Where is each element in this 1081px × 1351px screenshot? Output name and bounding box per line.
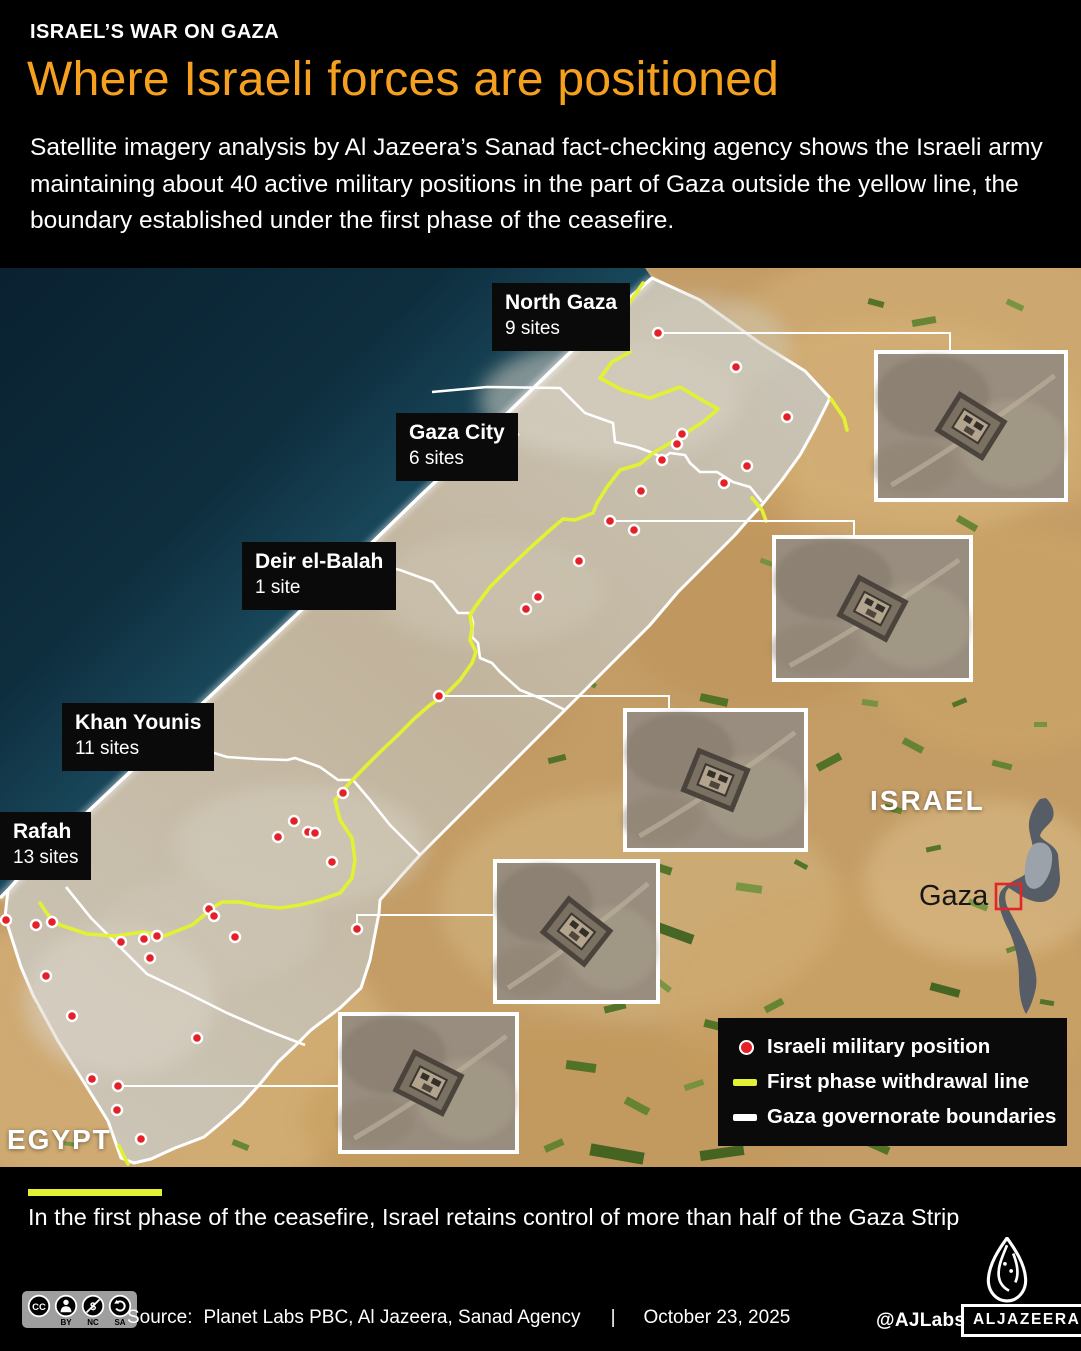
military-position-dot (31, 920, 41, 930)
label-khan-younis: Khan Younis 11 sites (62, 703, 214, 771)
boundary-line-swatch (733, 1114, 757, 1121)
footnote: In the first phase of the ceasefire, Isr… (28, 1204, 1038, 1231)
governorate-sites: 13 sites (13, 847, 78, 869)
egypt-label: EGYPT (7, 1124, 112, 1156)
military-position-dot (719, 478, 729, 488)
label-deir-el-balah: Deir el-Balah 1 site (242, 542, 396, 610)
footnote-accent-bar (28, 1189, 162, 1196)
cc-icon: CC (27, 1294, 51, 1327)
label-rafah: Rafah 13 sites (0, 812, 91, 880)
creative-commons-badge: CC BY $ NC SA (22, 1291, 137, 1328)
military-position-dot (67, 1011, 77, 1021)
svg-text:CC: CC (32, 1302, 46, 1313)
military-position-dot (112, 1105, 122, 1115)
date: October 23, 2025 (644, 1307, 791, 1329)
infographic-canvas: ISRAEL’S WAR ON GAZA Where Israeli force… (0, 0, 1081, 1351)
governorate-name: Deir el-Balah (255, 550, 383, 574)
description: Satellite imagery analysis by Al Jazeera… (30, 130, 1068, 240)
governorate-name: Rafah (13, 820, 78, 844)
satellite-inset-photo (770, 537, 971, 680)
source-line: Source: Planet Labs PBC, Al Jazeera, San… (127, 1307, 790, 1329)
military-position-dot (657, 455, 667, 465)
al-jazeera-flame-logo-icon (984, 1237, 1030, 1308)
legend-row-positions: Israeli military position (718, 1035, 1067, 1059)
governorate-sites: 6 sites (409, 448, 505, 470)
military-position-dot (145, 953, 155, 963)
gaza-inset-label: Gaza (919, 880, 988, 913)
military-position-dot (782, 412, 792, 422)
military-position-dot (310, 828, 320, 838)
military-position-dot (629, 525, 639, 535)
cc-by-icon: BY (54, 1294, 78, 1327)
military-position-dot (116, 937, 126, 947)
military-position-dot (41, 971, 51, 981)
governorate-name: Khan Younis (75, 711, 201, 735)
satellite-inset-photo (872, 352, 1066, 500)
satellite-inset-photo (492, 861, 658, 1002)
military-position-dot (113, 1081, 123, 1091)
military-position-dot (136, 1134, 146, 1144)
legend-label: First phase withdrawal line (767, 1070, 1029, 1094)
military-position-dot (327, 857, 337, 867)
source-value: Planet Labs PBC, Al Jazeera, Sanad Agenc… (203, 1307, 580, 1329)
military-position-dot (139, 934, 149, 944)
legend-row-withdrawal-line: First phase withdrawal line (718, 1070, 1067, 1094)
military-position-dot (605, 516, 615, 526)
military-position-dot (1, 915, 11, 925)
military-position-dot (289, 816, 299, 826)
al-jazeera-wordmark: ALJAZEERA (961, 1304, 1081, 1337)
label-north-gaza: North Gaza 9 sites (492, 283, 630, 351)
legend: Israeli military position First phase wi… (718, 1018, 1067, 1146)
governorate-sites: 1 site (255, 577, 383, 599)
gaza-map: North Gaza 9 sites Gaza City 6 sites Dei… (0, 268, 1081, 1167)
kicker: ISRAEL’S WAR ON GAZA (30, 21, 279, 44)
military-position-swatch (739, 1040, 754, 1055)
israel-label: ISRAEL (870, 785, 985, 817)
cc-nc-icon: $ NC (81, 1294, 105, 1327)
governorate-sites: 11 sites (75, 738, 201, 760)
military-position-dot (352, 924, 362, 934)
separator: | (611, 1307, 616, 1329)
legend-row-boundaries: Gaza governorate boundaries (718, 1105, 1067, 1129)
military-position-dot (672, 439, 682, 449)
page-title: Where Israeli forces are positioned (27, 52, 779, 107)
military-position-dot (192, 1033, 202, 1043)
satellite-inset-photo (336, 1014, 517, 1152)
military-position-dot (742, 461, 752, 471)
military-position-dot (653, 328, 663, 338)
military-position-dot (731, 362, 741, 372)
governorate-sites: 9 sites (505, 318, 617, 340)
satellite-inset-photo (621, 710, 806, 850)
military-position-dot (636, 486, 646, 496)
military-position-dot (434, 691, 444, 701)
ajlabs-handle: @AJLabs (876, 1310, 965, 1332)
military-position-dot (677, 429, 687, 439)
legend-label: Gaza governorate boundaries (767, 1105, 1056, 1129)
military-position-dot (273, 832, 283, 842)
governorate-name: North Gaza (505, 291, 617, 315)
governorate-name: Gaza City (409, 421, 505, 445)
withdrawal-line-swatch (733, 1079, 757, 1086)
military-position-dot (230, 932, 240, 942)
military-position-dot (152, 931, 162, 941)
military-position-dot (47, 917, 57, 927)
military-position-dot (338, 788, 348, 798)
military-position-dot (574, 556, 584, 566)
military-position-dot (533, 592, 543, 602)
military-position-dot (209, 911, 219, 921)
label-gaza-city: Gaza City 6 sites (396, 413, 518, 481)
legend-label: Israeli military position (767, 1035, 990, 1059)
source-label: Source: (127, 1307, 192, 1329)
footer: In the first phase of the ceasefire, Isr… (0, 1167, 1081, 1351)
military-position-dot (87, 1074, 97, 1084)
military-position-dot (521, 604, 531, 614)
